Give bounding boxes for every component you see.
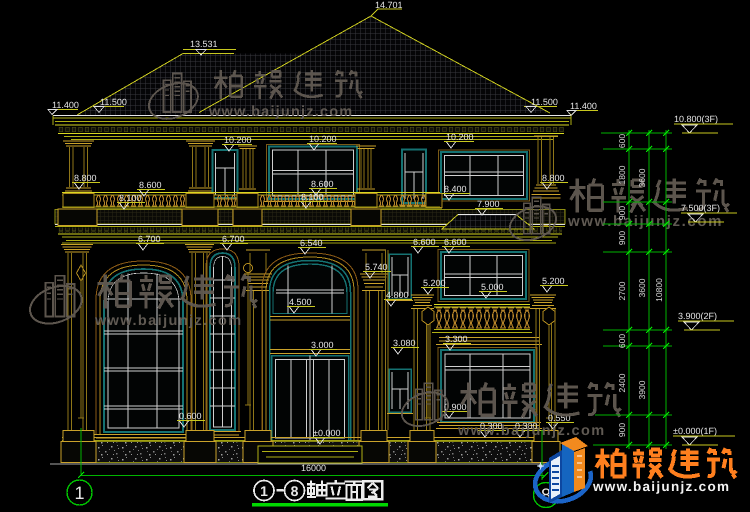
svg-text:7.500(3F): 7.500(3F) [681,203,720,213]
svg-text:5.000: 5.000 [481,282,504,292]
svg-text:4.800: 4.800 [386,290,409,300]
svg-text:7.900: 7.900 [477,199,500,209]
svg-text:6.700: 6.700 [138,234,161,244]
svg-text:600: 600 [617,334,627,348]
svg-text:4.500: 4.500 [289,297,312,307]
svg-text:10800: 10800 [654,278,664,302]
svg-text:www.baijunjz.com: www.baijunjz.com [567,213,723,230]
svg-text:±0.000: ±0.000 [313,428,340,438]
svg-text:8.800: 8.800 [542,173,565,183]
svg-text:8.400: 8.400 [444,184,467,194]
svg-text:6.700: 6.700 [222,234,245,244]
svg-text:5.740: 5.740 [365,262,388,272]
svg-text:8.600: 8.600 [311,179,334,189]
svg-text:900: 900 [617,231,627,245]
svg-text:3.900(2F): 3.900(2F) [678,311,717,321]
svg-text:6.600: 6.600 [413,237,436,247]
svg-text:11.500: 11.500 [100,97,127,107]
svg-text:3900: 3900 [637,380,647,399]
svg-text:www.baijunjz.com: www.baijunjz.com [94,313,243,329]
svg-text:10.200: 10.200 [309,134,337,144]
svg-text:900: 900 [617,423,627,437]
svg-text:16000: 16000 [301,463,326,473]
svg-text:3.080: 3.080 [393,338,416,348]
svg-text:11.400: 11.400 [570,101,597,111]
svg-text:11.400: 11.400 [52,100,79,110]
svg-text:3.000: 3.000 [311,340,334,350]
svg-text:600: 600 [617,134,627,148]
svg-text:900: 900 [617,206,627,220]
svg-text:5.200: 5.200 [542,276,565,286]
svg-text:1: 1 [74,483,84,503]
svg-text:14.701: 14.701 [375,0,403,10]
svg-text:6.600: 6.600 [444,237,467,247]
svg-text:8: 8 [291,483,299,499]
svg-text:www.baijunjz.com: www.baijunjz.com [592,479,730,494]
svg-text:8.100: 8.100 [119,193,142,203]
svg-text:8.800: 8.800 [74,173,97,183]
svg-text:10.800(3F): 10.800(3F) [674,114,718,124]
svg-text:8.100: 8.100 [301,192,324,202]
svg-text:±0.000(1F): ±0.000(1F) [673,426,717,436]
svg-text:www.baijunjz.com: www.baijunjz.com [208,104,353,120]
svg-text:10.200: 10.200 [446,132,474,142]
svg-text:1800: 1800 [617,165,627,184]
svg-text:3600: 3600 [637,168,647,187]
svg-text:8.600: 8.600 [139,180,162,190]
svg-text:www.baijunjz.com: www.baijunjz.com [457,423,606,439]
svg-text:2700: 2700 [617,281,627,300]
svg-text:5.200: 5.200 [423,278,446,288]
svg-text:3.300: 3.300 [445,334,468,344]
svg-text:6.540: 6.540 [300,238,323,248]
svg-text:3600: 3600 [637,278,647,297]
svg-text:13.531: 13.531 [190,39,218,49]
svg-text:11.500: 11.500 [531,97,558,107]
svg-text:1: 1 [260,483,268,499]
svg-text:10.200: 10.200 [224,135,252,145]
svg-text:2400: 2400 [617,373,627,392]
svg-text:0.600: 0.600 [179,411,202,421]
